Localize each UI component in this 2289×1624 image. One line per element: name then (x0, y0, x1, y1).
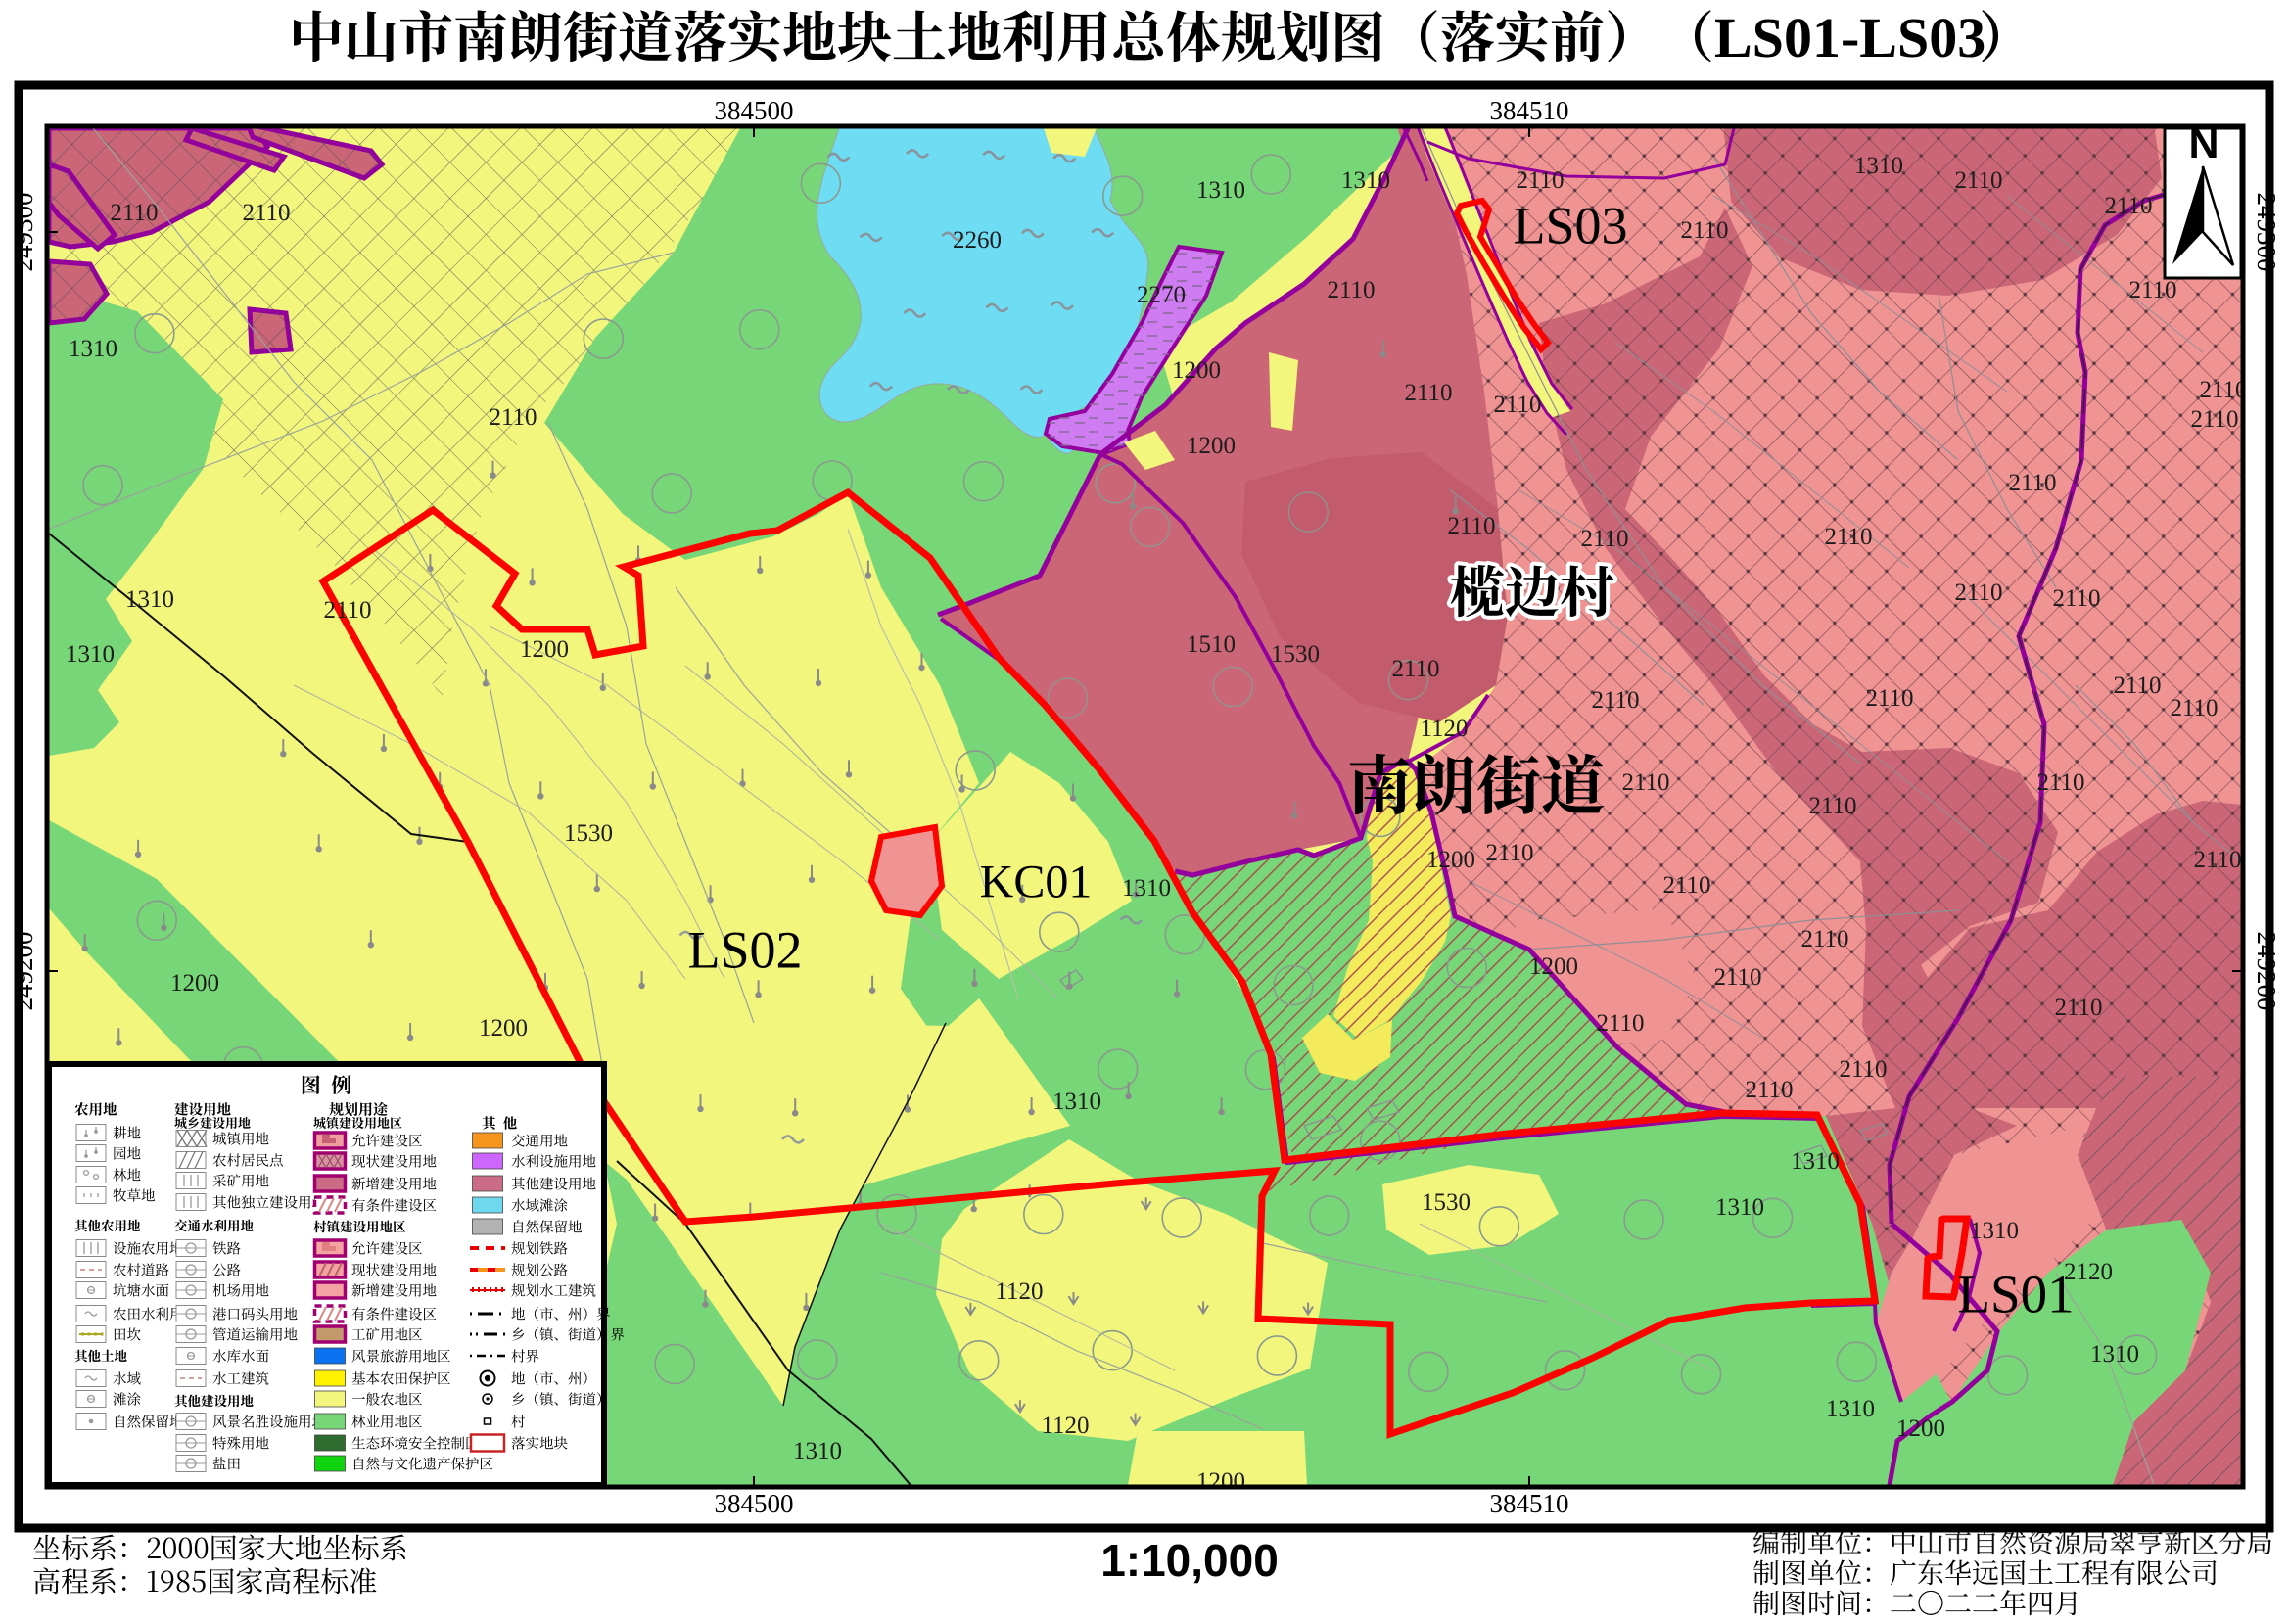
svg-text:1530: 1530 (1271, 641, 1320, 668)
svg-text:1530: 1530 (564, 820, 613, 847)
svg-text:2110: 2110 (1404, 380, 1452, 406)
svg-text:1310: 1310 (2090, 1341, 2139, 1368)
svg-text:1200: 1200 (1529, 953, 1578, 980)
svg-text:2110: 2110 (1954, 167, 2002, 194)
svg-text:2110: 2110 (489, 404, 537, 431)
svg-text:N: N (2188, 120, 2219, 167)
svg-text:2110: 2110 (2128, 277, 2176, 303)
svg-text:2110: 2110 (1447, 513, 1495, 539)
svg-text:1:10,000: 1:10,000 (1100, 1535, 1279, 1586)
svg-text:2110: 2110 (110, 200, 158, 226)
svg-text:1510: 1510 (1187, 631, 1236, 658)
svg-text:384510: 384510 (1490, 1489, 1569, 1518)
svg-text:2110: 2110 (2113, 673, 2161, 699)
svg-text:2110: 2110 (1713, 964, 1761, 991)
svg-text:2110: 2110 (1839, 1056, 1887, 1083)
svg-text:1310: 1310 (66, 641, 115, 668)
svg-text:249300: 249300 (2252, 193, 2281, 272)
svg-text:LS03: LS03 (1513, 196, 1627, 255)
svg-text:KC01: KC01 (980, 856, 1093, 907)
svg-text:1310: 1310 (1341, 167, 1390, 194)
svg-text:2110: 2110 (1800, 926, 1848, 952)
svg-text:2110: 2110 (2036, 769, 2084, 796)
svg-text:2110: 2110 (1662, 872, 1710, 899)
svg-text:249300: 249300 (9, 193, 38, 272)
svg-text:1200: 1200 (1896, 1415, 1945, 1442)
svg-text:249200: 249200 (9, 932, 38, 1011)
svg-text:2110: 2110 (2052, 585, 2100, 612)
svg-text:2110: 2110 (1745, 1077, 1793, 1103)
svg-text:384500: 384500 (715, 1489, 794, 1518)
svg-text:1120: 1120 (995, 1278, 1043, 1305)
svg-text:2110: 2110 (1824, 524, 1872, 550)
svg-text:1200: 1200 (479, 1015, 528, 1042)
svg-text:2110: 2110 (2054, 995, 2102, 1021)
svg-text:2110: 2110 (323, 597, 371, 624)
svg-text:2110: 2110 (2104, 193, 2152, 219)
svg-text:2110: 2110 (1591, 687, 1639, 714)
svg-text:1310: 1310 (1122, 875, 1171, 902)
svg-text:2110: 2110 (1954, 580, 2002, 606)
svg-text:1310: 1310 (1791, 1148, 1840, 1175)
svg-text:1310: 1310 (125, 586, 174, 613)
svg-text:384500: 384500 (715, 96, 794, 125)
svg-text:1200: 1200 (1187, 433, 1236, 459)
svg-text:2110: 2110 (1808, 793, 1856, 819)
svg-text:2110: 2110 (2008, 470, 2056, 496)
svg-text:2260: 2260 (953, 227, 1002, 254)
svg-text:2110: 2110 (1493, 392, 1541, 418)
svg-text:1310: 1310 (1715, 1194, 1764, 1221)
svg-text:2110: 2110 (1596, 1010, 1644, 1037)
svg-text:2270: 2270 (1137, 282, 1186, 308)
svg-text:1310: 1310 (1970, 1218, 2019, 1244)
svg-text:2110: 2110 (1485, 840, 1533, 866)
svg-text:1310: 1310 (793, 1438, 842, 1464)
svg-text:1120: 1120 (1041, 1413, 1089, 1439)
svg-text:249200: 249200 (2252, 932, 2281, 1011)
svg-text:1200: 1200 (520, 636, 569, 663)
svg-text:LS01: LS01 (1957, 1265, 2074, 1324)
svg-text:1530: 1530 (1422, 1189, 1471, 1216)
svg-text:1200: 1200 (1426, 847, 1475, 873)
svg-text:1310: 1310 (1826, 1396, 1875, 1422)
svg-text:1200: 1200 (1172, 357, 1221, 384)
svg-text:384510: 384510 (1490, 96, 1569, 125)
svg-text:1310: 1310 (1196, 177, 1245, 204)
svg-text:2110: 2110 (2193, 847, 2241, 873)
svg-text:2110: 2110 (2170, 695, 2218, 721)
svg-text:2110: 2110 (242, 200, 290, 226)
svg-text:2110: 2110 (1516, 167, 1564, 194)
svg-text:1310: 1310 (69, 336, 117, 362)
svg-text:2110: 2110 (1865, 685, 1913, 712)
svg-text:1120: 1120 (1420, 716, 1468, 742)
svg-text:2110: 2110 (2199, 377, 2247, 403)
svg-text:2110: 2110 (2190, 406, 2238, 433)
svg-text:1310: 1310 (1854, 153, 1903, 179)
svg-text:LS01-LS03: LS01-LS03 (1714, 6, 1985, 70)
svg-text:1200: 1200 (170, 970, 219, 997)
svg-text:2110: 2110 (1391, 656, 1439, 682)
svg-text:2110: 2110 (1621, 769, 1669, 796)
svg-text:LS02: LS02 (687, 920, 802, 979)
svg-text:2110: 2110 (1327, 277, 1375, 303)
svg-text:2110: 2110 (1680, 217, 1728, 244)
svg-text:1310: 1310 (1052, 1089, 1101, 1115)
svg-text:2110: 2110 (1580, 526, 1628, 552)
